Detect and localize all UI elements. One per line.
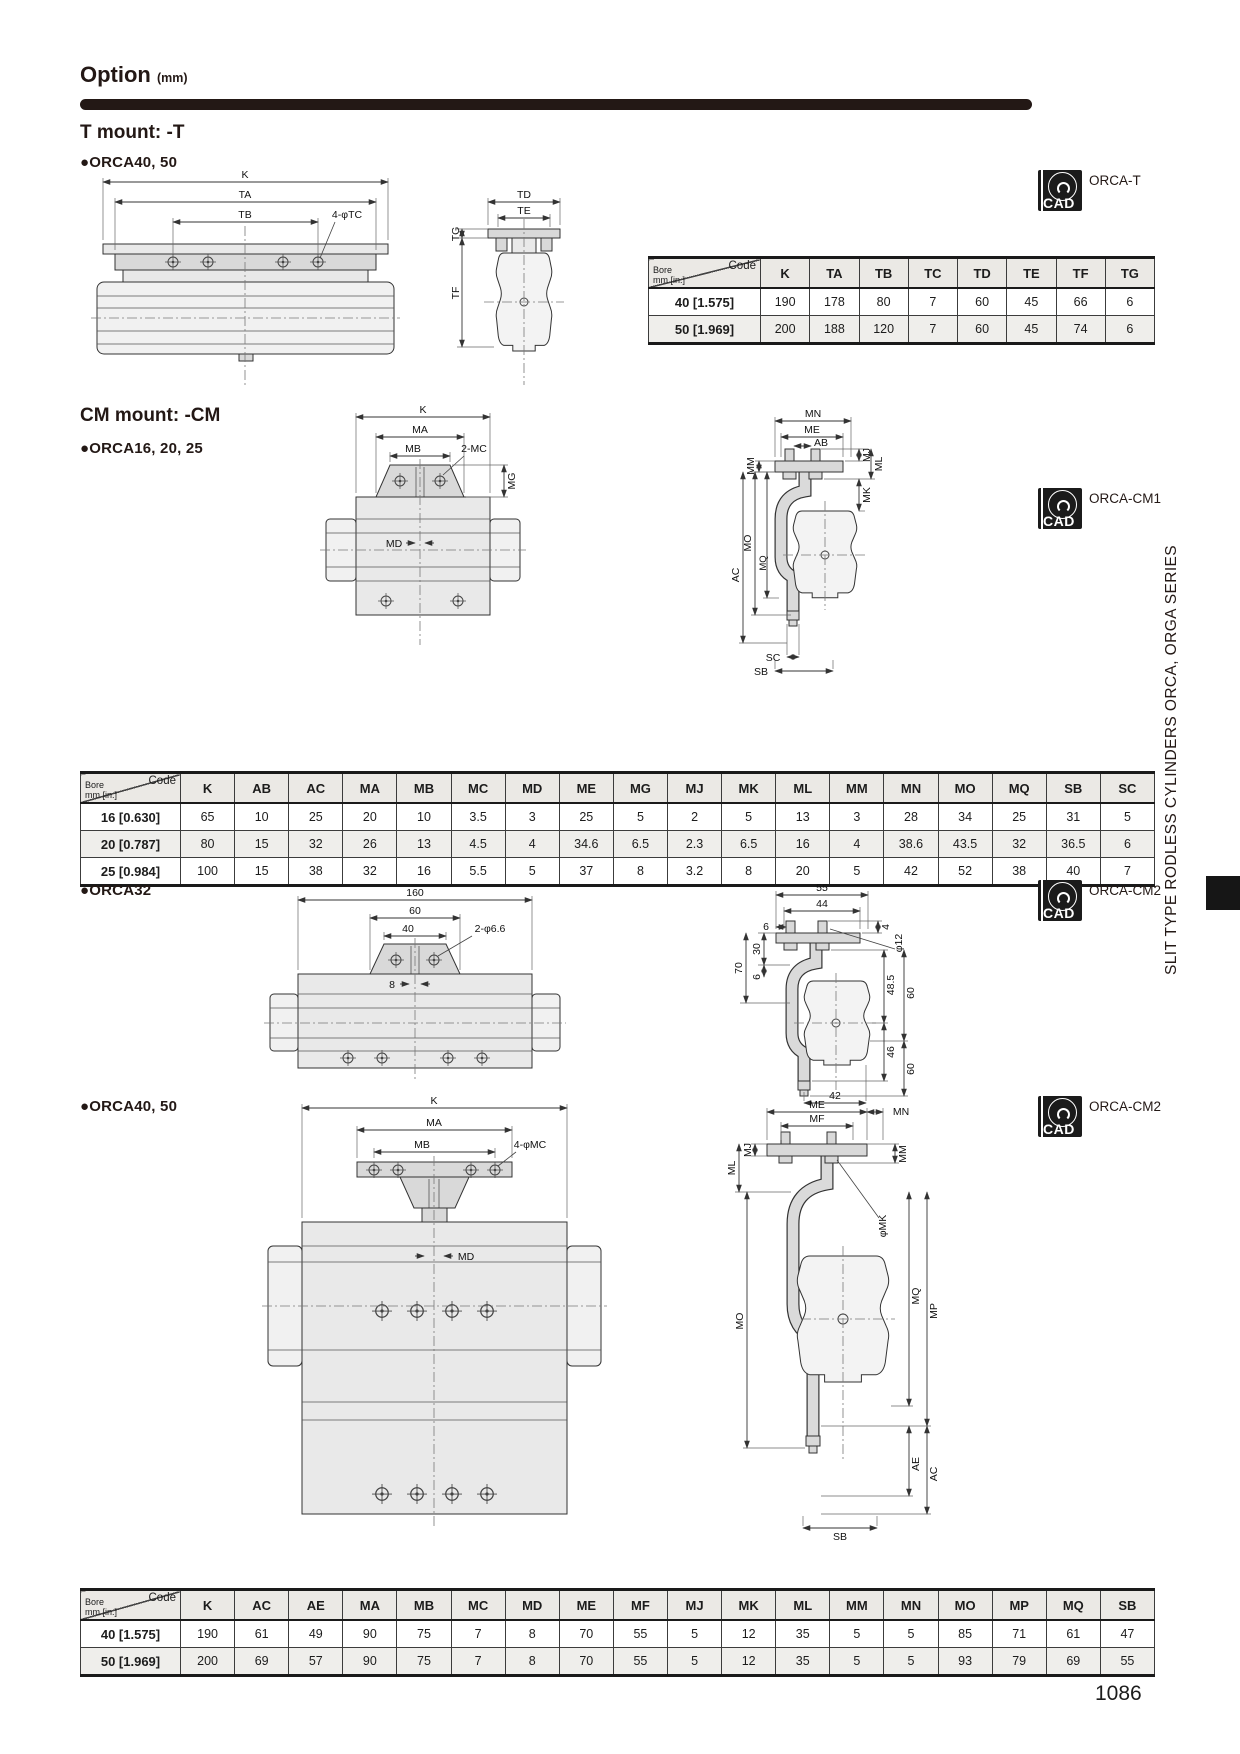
dim-label-mc: 4-φMC [514,1139,547,1151]
table-cell: 69 [1046,1648,1100,1676]
table-row: 50 [1.969]20018812076045746 [649,316,1155,344]
table-row: 25 [0.984]100153832165.553783.2820542523… [81,858,1155,886]
column-header-mf: MF [613,1590,667,1621]
table-cell: 80 [859,288,908,316]
column-header-td: TD [958,258,1007,289]
cad-ref-label: ORCA-CM2 [1089,1099,1161,1114]
drawing-shape [484,219,564,385]
table-cell: 35 [776,1620,830,1648]
dim-label-60: 60 [409,905,421,917]
dim-label-tc: 4-φTC [332,209,363,221]
dim-label-4: 4 [880,924,892,930]
table-row: 40 [1.575]190614990757870555123555857161… [81,1620,1155,1648]
dim-label-40: 40 [402,923,414,935]
cad-icon[interactable]: CAD [1038,488,1082,529]
dim-label-46: 46 [885,1046,897,1058]
dim-label-mb: MB [414,1139,430,1151]
table-cell: 5 [830,858,884,886]
table-cell: 5 [505,858,559,886]
table-cell: 60 [958,316,1007,344]
column-header-mc: MC [451,773,505,804]
table-header-row: CodeBoremm [in.]KACAEMAMBMCMDMEMFMJMKMLM… [81,1590,1155,1621]
table-cell: 43.5 [938,831,992,858]
dim-label-ma: MA [426,1117,442,1129]
cad-icon-text: CAD [1043,195,1075,211]
dim-label-48.5: 48.5 [885,975,897,996]
table-cell: 4 [505,831,559,858]
dim-label-td: TD [517,189,531,201]
table-cell: 15 [235,831,289,858]
table-cell: 26 [343,831,397,858]
dim-label-6b: 6 [751,974,763,980]
dim-label-te: TE [517,205,530,217]
table-cell: 5 [1100,803,1154,831]
column-header-mn: MN [884,773,938,804]
column-header-ml: ML [776,773,830,804]
dim-label-ml: ML [726,1161,738,1176]
table-cell: 32 [992,831,1046,858]
table-cell: 25 [559,803,613,831]
orca32-front-drawing: 160 60 40 2-φ6.6 8 [268,888,563,1083]
dim-label-md: MD [386,538,403,550]
corner-bore-label: Boremm [in.] [85,781,117,801]
dim-label-mf: MF [809,1113,824,1125]
table-cell: 34 [938,803,992,831]
dim-label-ac: AC [730,567,742,582]
table-corner-cell: CodeBoremm [in.] [649,258,761,289]
table-cell: 37 [559,858,613,886]
column-header-ae: AE [289,1590,343,1621]
table-cell: 3.2 [667,858,721,886]
dim-label-sc: SC [766,652,781,664]
drawing-shape [262,1156,607,1528]
table-cell: 36.5 [1046,831,1100,858]
column-header-ac: AC [289,773,343,804]
column-header-mq: MQ [992,773,1046,804]
cad-icon-text: CAD [1043,513,1075,529]
section-title-tmount: T mount: -T [80,122,184,144]
section-divider-bar [80,99,1032,110]
table-cell: 2 [667,803,721,831]
dim-label-70: 70 [733,962,745,974]
table-cell: 8 [613,858,667,886]
table-cell: 35 [776,1648,830,1676]
dim-label-mm: MM [897,1145,909,1163]
table-cell: 10 [397,803,451,831]
column-header-ma: MA [343,1590,397,1621]
table-cell: 5 [667,1620,721,1648]
table-cell: 71 [992,1620,1046,1648]
column-header-mq: MQ [1046,1590,1100,1621]
drawing-shape [775,449,867,626]
table-cell: 190 [181,1620,235,1648]
table-cell: 8 [505,1648,559,1676]
dim-label-8: 8 [389,979,395,991]
table-cell: 74 [1056,316,1105,344]
dim-label-tf: TF [450,287,462,300]
row-header-bore: 40 [1.575] [81,1620,181,1648]
column-header-mb: MB [397,1590,451,1621]
side-tab-marker [1206,876,1240,910]
drawing-shape [776,921,878,1096]
table-cell: 69 [235,1648,289,1676]
table-cell: 45 [1007,288,1056,316]
dim-label-mk: MK [861,487,873,503]
dim-label-k: K [241,169,248,181]
column-header-mm: MM [830,1590,884,1621]
spec-table: CodeBoremm [in.]KABACMAMBMCMDMEMGMJMKMLM… [80,771,1155,887]
table-cell: 5 [722,803,776,831]
column-header-mk: MK [722,1590,776,1621]
column-header-mp: MP [992,1590,1046,1621]
table-header-row: CodeBoremm [in.]KTATBTCTDTETFTG [649,258,1155,289]
row-header-bore: 50 [1.969] [649,316,761,344]
dim-label-tg: TG [450,227,462,242]
drawing-shape [264,938,566,1080]
dim-label-me: ME [804,424,820,436]
table-cell: 6 [1100,831,1154,858]
drawing-shape [320,459,526,645]
table-cell: 65 [181,803,235,831]
dim-label-mg: MG [506,473,518,490]
table-cell: 75 [397,1620,451,1648]
sidebar-series-label: SLIT TYPE RODLESS CYLINDERS ORCA, ORGA S… [1163,505,1181,975]
cad-icon-text: CAD [1043,905,1075,921]
dim-label-mn: MN [805,408,821,420]
row-header-bore: 20 [0.787] [81,831,181,858]
table-cell: 32 [289,831,343,858]
table-cell: 6 [1105,316,1154,344]
cad-ref-label: ORCA-T [1089,173,1141,188]
table-cell: 12 [722,1620,776,1648]
column-header-mj: MJ [667,773,721,804]
corner-bore-label: Boremm [in.] [653,266,685,286]
table-row: 50 [1.969]200695790757870555123555937969… [81,1648,1155,1676]
column-header-mk: MK [722,773,776,804]
dim-label-sb: SB [833,1531,847,1543]
table-cell: 61 [1046,1620,1100,1648]
cad-download-tmount[interactable]: CAD ORCA-T [1038,170,1141,211]
dim-label-mb: MB [405,443,421,455]
cm-small-side-drawing: MN ME AB MM MJ ML MK MO [655,405,885,677]
column-header-ml: ML [776,1590,830,1621]
table-cell: 13 [397,831,451,858]
table-cell: 34.6 [559,831,613,858]
tmount-spec-table: CodeBoremm [in.]KTATBTCTDTETFTG40 [1.575… [648,256,1155,345]
dim-label-tb: TB [238,209,251,221]
column-header-md: MD [505,1590,559,1621]
row-header-bore: 40 [1.575] [649,288,761,316]
corner-bore-label: Boremm [in.] [85,1598,117,1618]
table-cell: 4.5 [451,831,505,858]
column-header-ma: MA [343,773,397,804]
table-cell: 10 [235,803,289,831]
table-cell: 3.5 [451,803,505,831]
column-header-k: K [181,773,235,804]
cad-ref-label: ORCA-CM1 [1089,491,1161,506]
drawing-shape [767,1132,895,1461]
table-cell: 52 [938,858,992,886]
table-cell: 5 [884,1648,938,1676]
model-heading-orca16-20-25: ●ORCA16, 20, 25 [80,440,203,457]
table-cell: 31 [1046,803,1100,831]
table-cell: 7 [451,1620,505,1648]
cad-icon[interactable]: CAD [1038,170,1082,211]
table-cell: 38 [289,858,343,886]
section-title-cmmount: CM mount: -CM [80,405,220,427]
spec-table: CodeBoremm [in.]KTATBTCTDTETFTG40 [1.575… [648,256,1155,345]
table-row: 40 [1.575]1901788076045666 [649,288,1155,316]
dim-label-ac: AC [928,1466,940,1481]
column-header-ta: TA [810,258,859,289]
table-cell: 66 [1056,288,1105,316]
column-header-k: K [181,1590,235,1621]
catalog-page: Option (mm) T mount: -T ●ORCA40, 50 CAD … [0,0,1240,1754]
dim-label-ab: AB [814,437,828,449]
dim-label-mn: MN [893,1106,909,1118]
tmount-front-drawing: K TA TB 4-φTC [83,168,428,398]
cad-ref-label: ORCA-CM2 [1089,883,1161,898]
dim-label-55: 55 [816,882,828,894]
table-corner-cell: CodeBoremm [in.] [81,773,181,804]
column-header-mo: MO [938,773,992,804]
table-cell: 85 [938,1620,992,1648]
table-cell: 47 [1100,1620,1154,1648]
column-header-mj: MJ [667,1590,721,1621]
column-header-md: MD [505,773,559,804]
table-corner-cell: CodeBoremm [in.] [81,1590,181,1621]
cm-large-spec-table: CodeBoremm [in.]KACAEMAMBMCMDMEMFMJMKMLM… [80,1588,1155,1677]
dim-label-ae: AE [910,1457,922,1471]
table-cell: 15 [235,858,289,886]
table-cell: 38.6 [884,831,938,858]
dim-label-ml: ML [873,457,885,472]
table-cell: 120 [859,316,908,344]
cm-large-side-drawing: ME MN MF MJ ML MM MO φMK M [655,1096,960,1544]
cad-download-cm1[interactable]: CAD ORCA-CM1 [1038,488,1161,529]
column-header-mg: MG [613,773,667,804]
column-header-mm: MM [830,773,884,804]
table-cell: 70 [559,1648,613,1676]
corner-code-label: Code [149,1592,177,1604]
table-cell: 42 [884,858,938,886]
table-cell: 7 [908,288,957,316]
table-cell: 5 [830,1648,884,1676]
table-cell: 49 [289,1620,343,1648]
table-cell: 3 [830,803,884,831]
table-cell: 5 [667,1648,721,1676]
model-heading-orca32: ●ORCA32 [80,882,151,899]
table-cell: 32 [343,858,397,886]
table-cell: 45 [1007,316,1056,344]
dim-label-ma: MA [412,424,428,436]
column-header-mo: MO [938,1590,992,1621]
table-cell: 75 [397,1648,451,1676]
table-cell: 4 [830,831,884,858]
table-cell: 80 [181,831,235,858]
dim-label-me: ME [809,1099,825,1111]
unit-label: (mm) [157,71,188,85]
dim-label-2-6.6: 2-φ6.6 [475,923,506,935]
dim-label-mq: MQ [910,1288,922,1305]
dim-label-mq: MQ [758,555,769,570]
table-cell: 13 [776,803,830,831]
dim-label-160: 160 [406,887,424,899]
cm-small-front-drawing: K MA MB 2-MC MG MD [318,405,528,650]
dim-label-mp: MP [928,1303,940,1319]
cad-icon-text: CAD [1043,1121,1075,1137]
table-cell: 55 [613,1648,667,1676]
dim-label-mc: 2-MC [461,443,487,455]
table-cell: 90 [343,1648,397,1676]
table-cell: 200 [181,1648,235,1676]
table-cell: 190 [761,288,810,316]
dim-label-30: 30 [751,943,763,955]
table-row: 16 [0.630]65102520103.532552513328342531… [81,803,1155,831]
drawing-shape [91,226,400,388]
table-cell: 12 [722,1648,776,1676]
column-header-sc: SC [1100,773,1154,804]
table-cell: 28 [884,803,938,831]
table-cell: 57 [289,1648,343,1676]
table-cell: 55 [613,1620,667,1648]
column-header-mn: MN [884,1590,938,1621]
table-cell: 61 [235,1620,289,1648]
dim-label-44: 44 [816,898,828,910]
cm-large-front-drawing: K MA MB 4-φMC MD [262,1096,607,1536]
column-header-tg: TG [1105,258,1154,289]
table-cell: 20 [343,803,397,831]
column-header-ac: AC [235,1590,289,1621]
dim-label-ta: TA [239,189,252,201]
row-header-bore: 16 [0.630] [81,803,181,831]
column-header-mb: MB [397,773,451,804]
column-header-tf: TF [1056,258,1105,289]
dim-label-md: MD [458,1251,475,1263]
cad-icon[interactable]: CAD [1038,1096,1082,1137]
table-cell: 8 [722,858,776,886]
column-header-k: K [761,258,810,289]
tmount-side-drawing: TD TE TG TF [448,185,598,395]
orca32-side-drawing: 55 44 6 30 6 70 4 φ12 48.5 [668,885,938,1107]
table-cell: 2.3 [667,831,721,858]
column-header-te: TE [1007,258,1056,289]
table-cell: 25 [289,803,343,831]
table-row: 20 [0.787]80153226134.5434.66.52.36.5164… [81,831,1155,858]
table-cell: 5 [884,1620,938,1648]
dim-label-phi12: φ12 [893,934,905,953]
table-cell: 55 [1100,1648,1154,1676]
column-header-ab: AB [235,773,289,804]
table-cell: 200 [761,316,810,344]
dim-label-k: K [419,404,426,416]
column-header-tb: TB [859,258,908,289]
table-cell: 16 [397,858,451,886]
cad-download-cm2b[interactable]: CAD ORCA-CM2 [1038,1096,1161,1137]
column-header-tc: TC [908,258,957,289]
table-cell: 90 [343,1620,397,1648]
dim-label-mo: MO [734,1313,746,1330]
table-cell: 8 [505,1620,559,1648]
table-cell: 60 [958,288,1007,316]
column-header-sb: SB [1100,1590,1154,1621]
table-cell: 5 [613,803,667,831]
table-cell: 93 [938,1648,992,1676]
table-header-row: CodeBoremm [in.]KABACMAMBMCMDMEMGMJMKMLM… [81,773,1155,804]
column-header-me: ME [559,1590,613,1621]
column-header-me: ME [559,773,613,804]
column-header-mc: MC [451,1590,505,1621]
dim-label-60b: 60 [905,1063,917,1075]
table-cell: 6.5 [722,831,776,858]
page-title-text: Option [80,62,151,87]
corner-code-label: Code [729,260,757,272]
table-cell: 70 [559,1620,613,1648]
dim-label-6a: 6 [763,921,769,933]
dim-label-mo: MO [742,535,754,552]
table-cell: 100 [181,858,235,886]
table-cell: 178 [810,288,859,316]
row-header-bore: 50 [1.969] [81,1648,181,1676]
cad-icon[interactable]: CAD [1038,880,1082,921]
table-cell: 188 [810,316,859,344]
model-heading-orca40-50-cm: ●ORCA40, 50 [80,1098,177,1115]
cad-download-cm2a[interactable]: CAD ORCA-CM2 [1038,880,1161,921]
spec-table: CodeBoremm [in.]KACAEMAMBMCMDMEMFMJMKMLM… [80,1588,1155,1677]
table-cell: 7 [451,1648,505,1676]
cm-small-spec-table: CodeBoremm [in.]KABACMAMBMCMDMEMGMJMKMLM… [80,771,1155,887]
table-cell: 6 [1105,288,1154,316]
page-number: 1086 [1095,1682,1142,1706]
table-cell: 3 [505,803,559,831]
table-cell: 7 [908,316,957,344]
dim-label-sb: SB [754,666,768,678]
page-title: Option (mm) [80,62,188,88]
table-cell: 79 [992,1648,1046,1676]
table-cell: 6.5 [613,831,667,858]
dim-label-k: K [430,1095,437,1107]
dim-label-60a: 60 [905,987,917,999]
table-cell: 5.5 [451,858,505,886]
table-cell: 16 [776,831,830,858]
table-cell: 5 [830,1620,884,1648]
table-cell: 25 [992,803,1046,831]
dim-label-mj: MJ [742,1143,754,1157]
corner-code-label: Code [149,775,177,787]
column-header-sb: SB [1046,773,1100,804]
